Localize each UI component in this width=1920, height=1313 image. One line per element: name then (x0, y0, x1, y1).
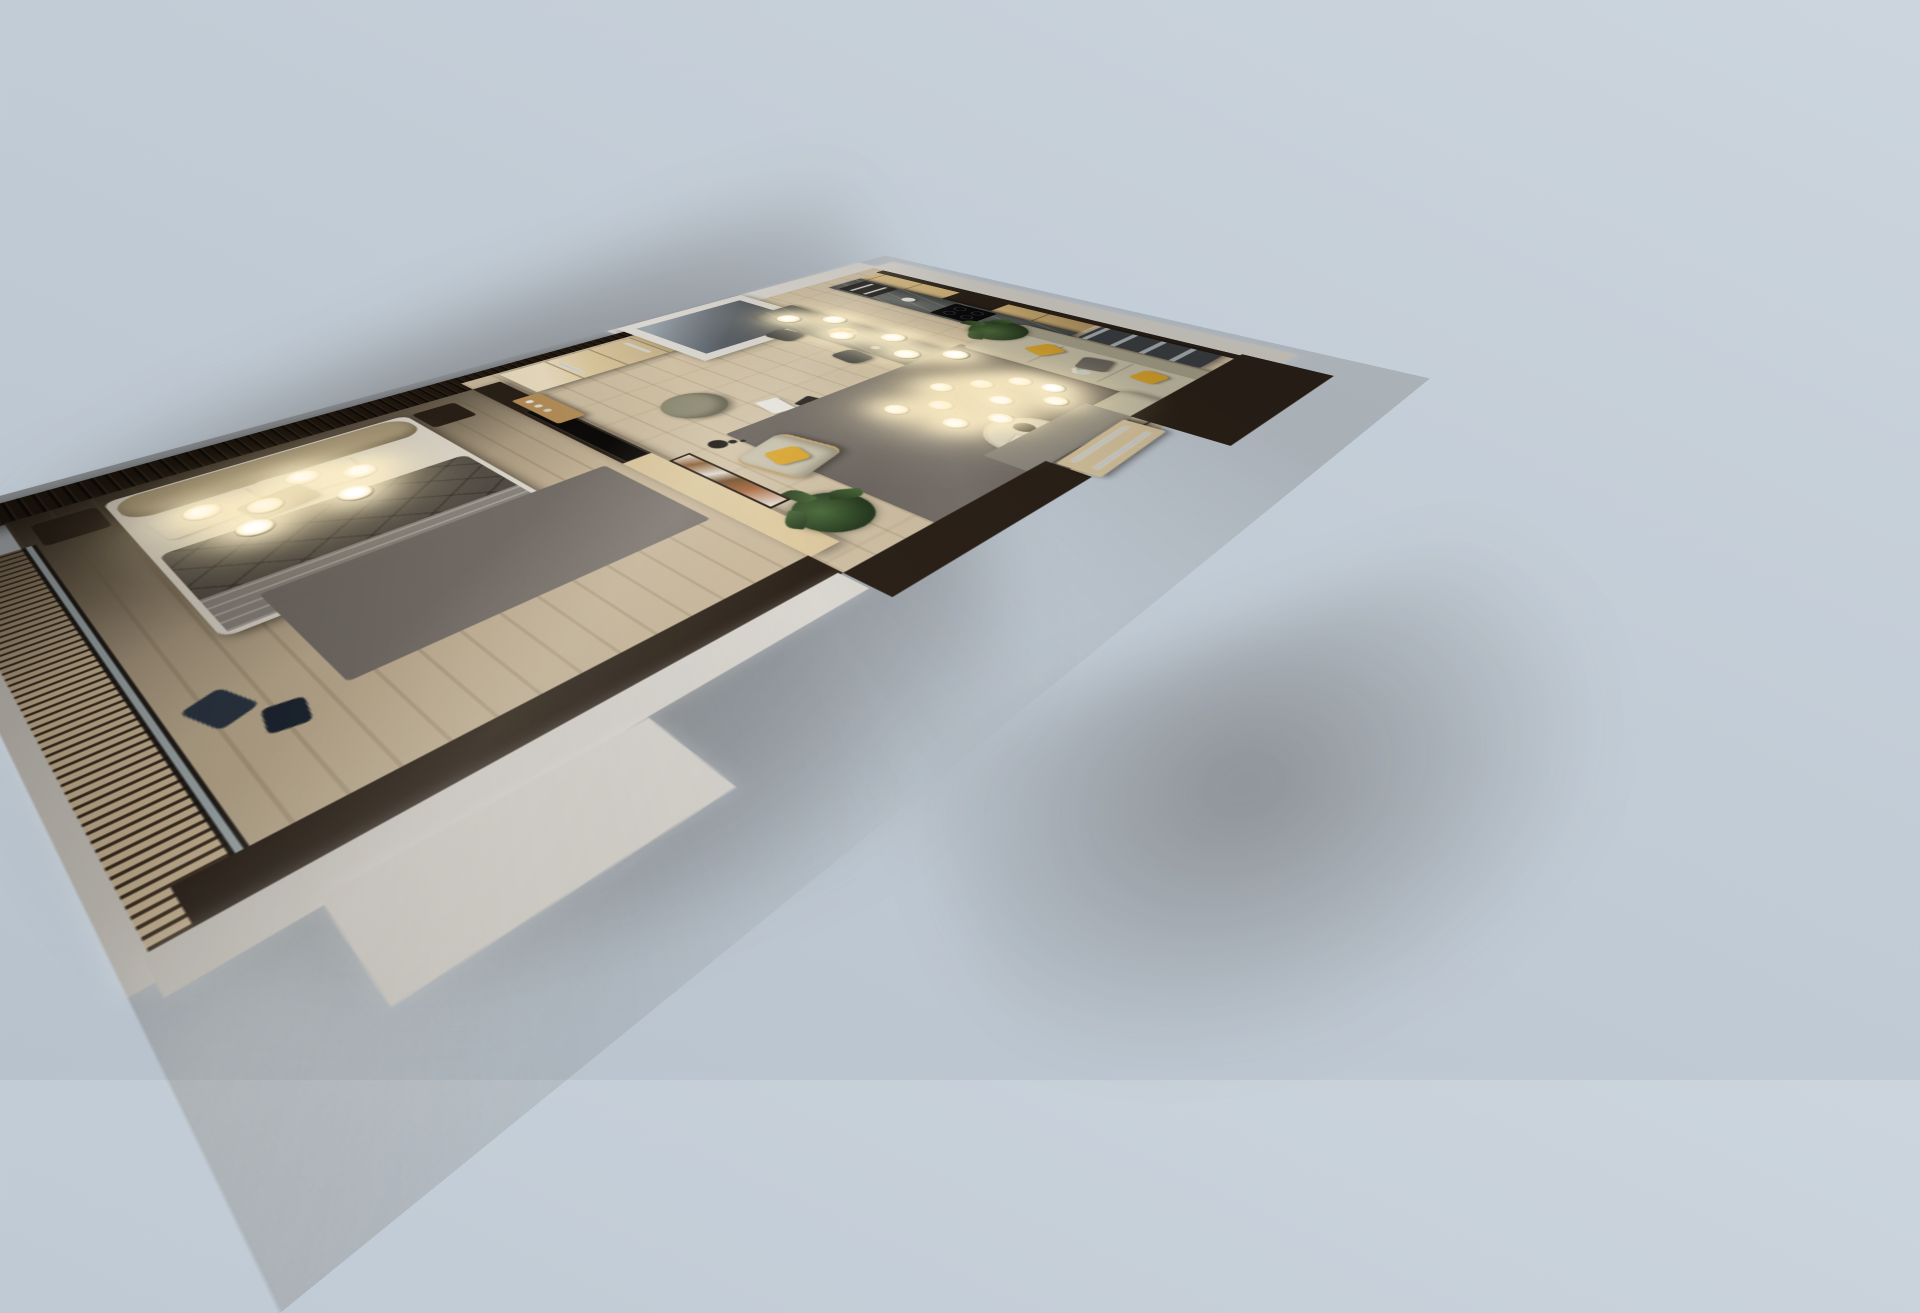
plant-leaf (988, 319, 1016, 324)
microwave-handle (863, 287, 887, 294)
cooktop-ring (940, 310, 958, 315)
cooktop-ring (958, 315, 976, 320)
sofa-pillow-yellow (1128, 370, 1171, 385)
oven-handle (850, 284, 874, 291)
armchair-pillow-yellow (762, 445, 813, 465)
door-handle-2 (1094, 432, 1151, 470)
render-stage (0, 0, 1920, 1080)
sofa-pillow-yellow (1023, 343, 1067, 356)
